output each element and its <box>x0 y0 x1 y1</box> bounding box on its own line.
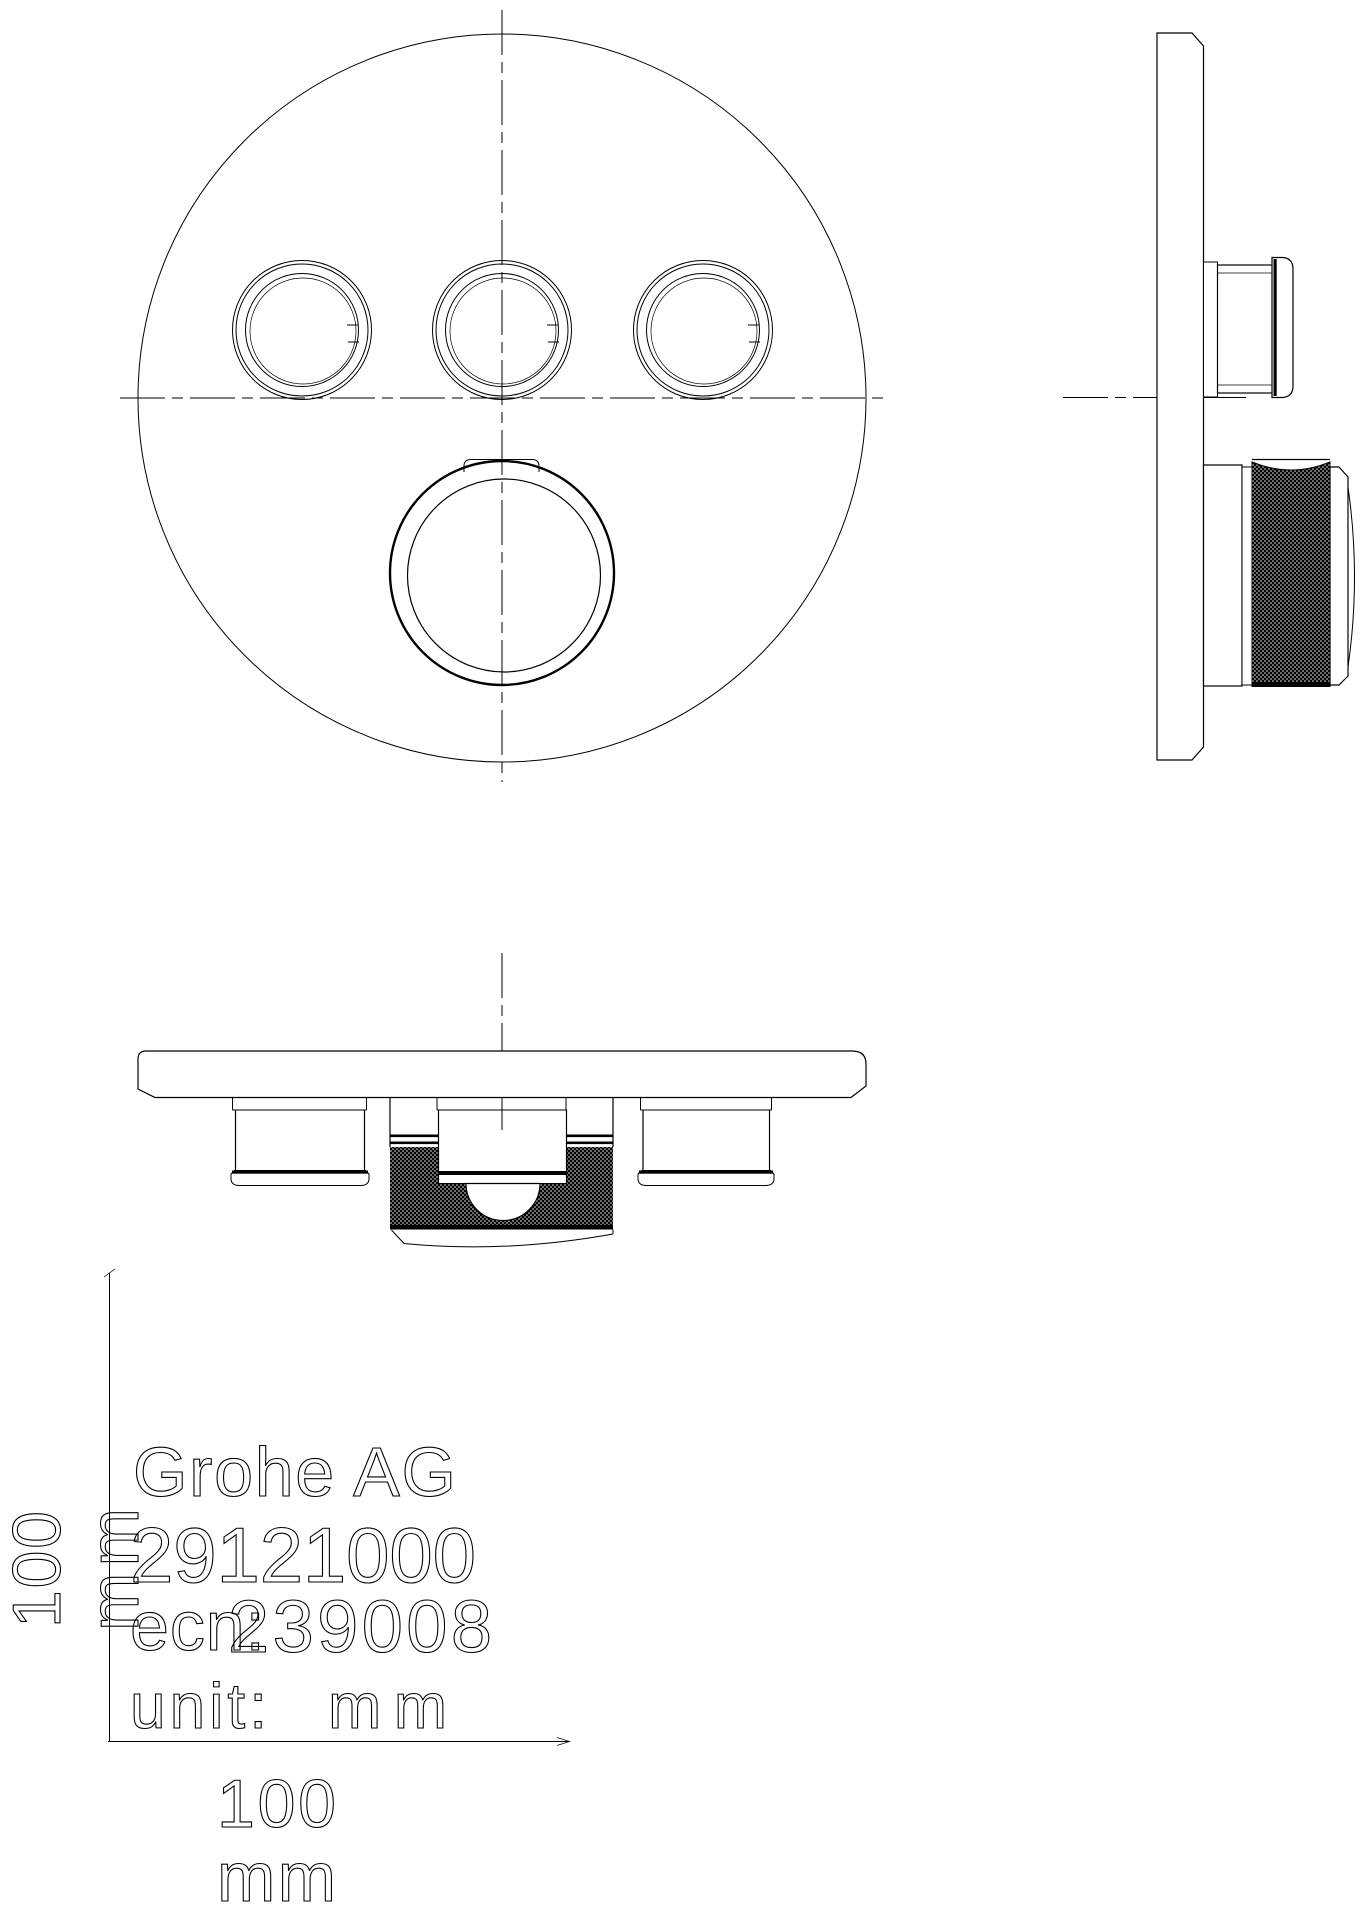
knob-serration <box>390 1225 613 1230</box>
side-plate <box>1157 33 1204 760</box>
knob-serration <box>1252 682 1330 687</box>
button-cap-edge <box>1274 259 1277 396</box>
button-side <box>1204 258 1294 398</box>
knob-sleeve <box>1204 465 1243 686</box>
middle-button-cap-edge <box>439 1171 567 1175</box>
button-collar <box>1204 262 1218 397</box>
button-body <box>1218 265 1275 393</box>
company-name: Grohe AG <box>133 1433 457 1511</box>
knob-collar <box>1242 467 1252 685</box>
height-dim-value: 100 <box>0 1510 75 1628</box>
knob-side <box>1204 460 1355 688</box>
bottom-plate <box>138 1051 866 1098</box>
knob-cap <box>1330 467 1348 685</box>
width-dim-value: 100 <box>217 1766 337 1842</box>
middle-button-face <box>439 1130 567 1184</box>
button-flange-edge <box>639 1171 773 1174</box>
technical-drawing-page: Grohe AG 29121000 ecn: 239008 unit: mm 1… <box>0 0 1367 1920</box>
width-dim-unit: mm <box>217 1838 337 1916</box>
button-flange-edge <box>232 1171 368 1174</box>
knob-knurl <box>1252 462 1330 687</box>
